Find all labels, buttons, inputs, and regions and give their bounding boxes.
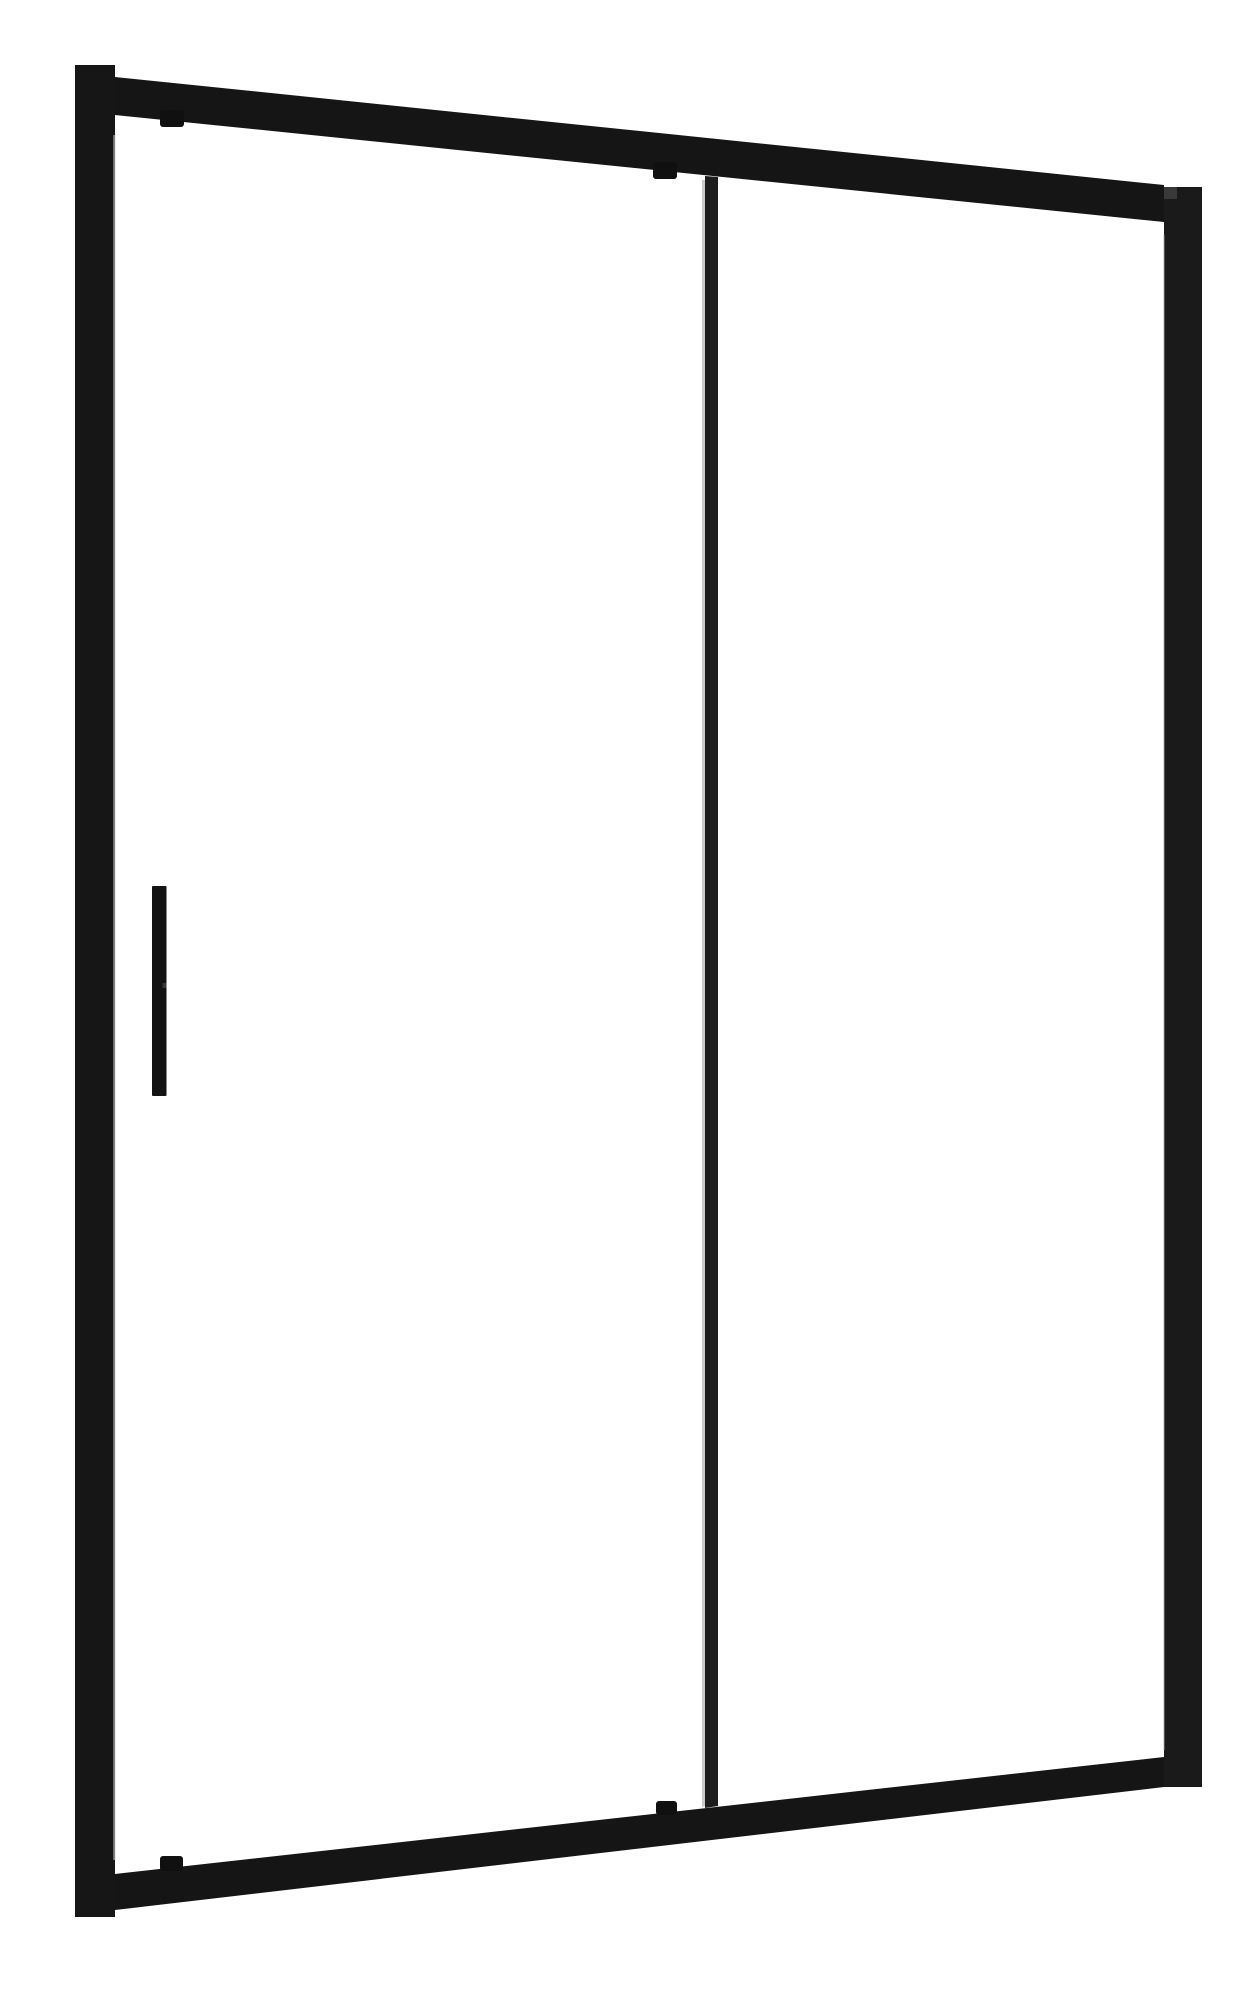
left-frame-stile — [75, 65, 115, 1917]
shower-door-photo — [0, 0, 1251, 2000]
left-stile-inner-edge-highlight — [113, 135, 115, 1860]
door-handle-seam — [163, 983, 167, 988]
door-handle — [152, 886, 167, 1096]
top-rail-endcap-highlight — [1164, 187, 1177, 199]
right-frame-stile — [1164, 187, 1202, 1787]
glass-panel-right — [718, 177, 1164, 1806]
glass-panel-left — [115, 115, 705, 1874]
clip-top-left — [160, 110, 184, 127]
right-stile-inner-edge-highlight — [1163, 235, 1165, 1750]
clip-bottom-center — [656, 1801, 677, 1815]
product-photo-canvas — [0, 0, 1251, 2000]
center-glass-divider — [705, 176, 718, 1808]
clip-bottom-left — [160, 1856, 183, 1871]
clip-top-center — [653, 162, 677, 179]
center-divider-edge-highlight — [702, 180, 706, 1807]
